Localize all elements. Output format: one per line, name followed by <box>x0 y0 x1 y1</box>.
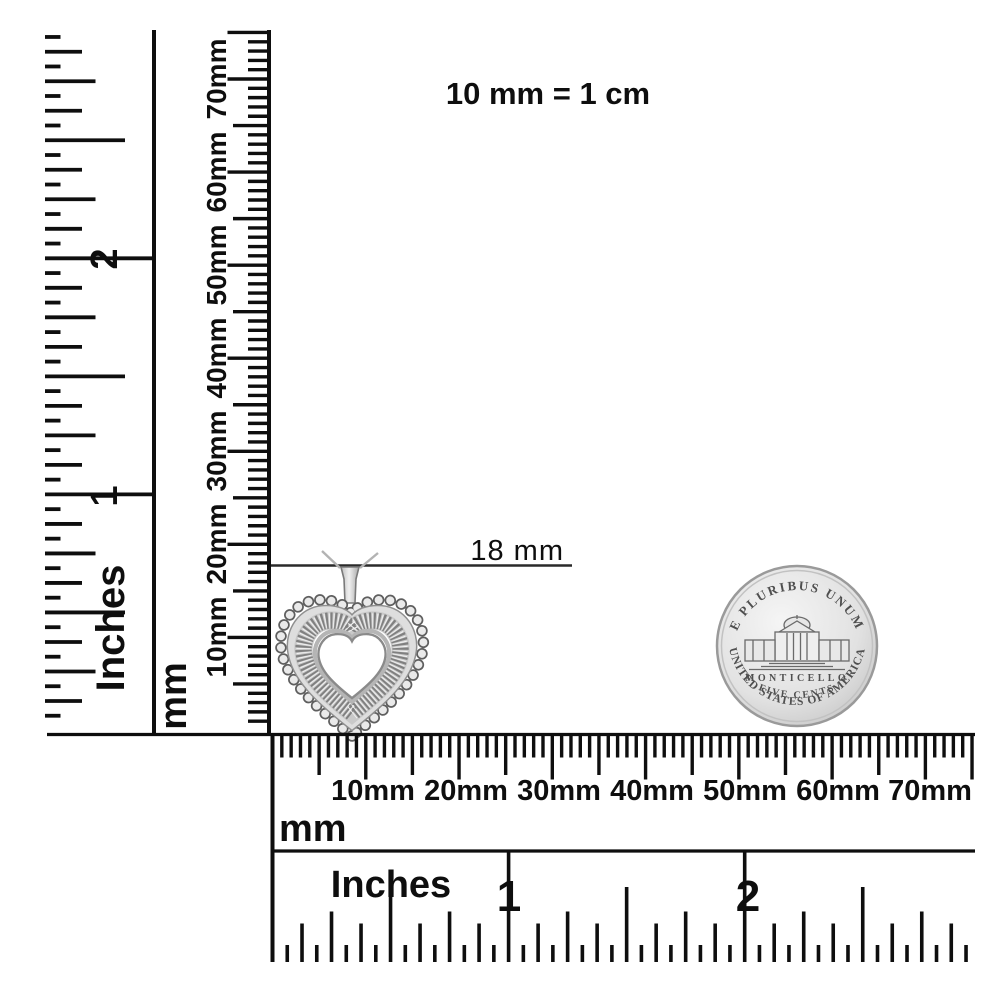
bottom-inches-number-2: 2 <box>736 872 760 921</box>
left-mm-label-20: 20mm <box>201 504 232 585</box>
bottom-mm-unit-label: mm <box>279 808 347 850</box>
building-portico <box>775 632 819 661</box>
bottom-mm-label-40: 40mm <box>610 775 694 807</box>
bottom-mm-label-30: 30mm <box>517 775 601 807</box>
bottom-mm-ruler-ticks <box>282 735 972 780</box>
left-mm-label-60: 60mm <box>201 132 232 213</box>
left-inches-number-1: 1 <box>84 485 126 506</box>
left-inches-unit-label: Inches <box>89 565 133 692</box>
left-mm-label-40: 40mm <box>201 318 232 399</box>
left-mm-ruler: 10mm 20mm 30mm 40mm 50mm 60mm 70mm mm <box>153 30 269 734</box>
left-mm-label-10: 10mm <box>201 597 232 678</box>
size-annotation: 18 mm <box>271 535 572 567</box>
pendant-bail <box>341 567 359 603</box>
left-mm-ruler-ticks <box>228 32 270 721</box>
building-left-wing <box>745 640 775 661</box>
left-mm-label-30: 30mm <box>201 411 232 492</box>
bottom-inches-ruler: Inches 1 2 <box>271 733 975 962</box>
left-mm-label-50: 50mm <box>201 225 232 306</box>
pendant-heart <box>281 600 424 736</box>
heart-pendant-photo <box>281 551 424 736</box>
bottom-inches-number-1: 1 <box>497 872 521 921</box>
nickel-coin-photo: E PLURIBUS UNUM UNITED STATES OF AMERICA… <box>717 566 877 726</box>
building-right-wing <box>819 640 849 661</box>
bottom-mm-label-50: 50mm <box>703 775 787 807</box>
bottom-mm-label-20: 20mm <box>424 775 508 807</box>
bottom-mm-label-70: 70mm <box>888 775 972 807</box>
left-inches-number-2: 2 <box>84 248 126 269</box>
scale-note-title: 10 mm = 1 cm <box>446 76 650 111</box>
product-measurement-image: 10 mm = 1 cm 1 2 Inches 10mm 20mm 30mm 4… <box>0 0 1000 1000</box>
bottom-mm-label-60: 60mm <box>796 775 880 807</box>
left-inches-ruler: 1 2 Inches <box>45 30 154 734</box>
left-mm-unit-label: mm <box>153 662 195 730</box>
left-mm-label-70: 70mm <box>201 39 232 120</box>
bottom-inches-unit-label: Inches <box>331 864 451 906</box>
coin-monticello-label: MONTICELLO <box>745 673 849 684</box>
bottom-mm-label-10: 10mm <box>331 775 415 807</box>
measurement-scene: 10 mm = 1 cm 1 2 Inches 10mm 20mm 30mm 4… <box>0 0 1000 1000</box>
bottom-mm-ruler: 10mm 20mm 30mm 40mm 50mm 60mm 70mm mm <box>279 735 972 850</box>
size-annotation-label: 18 mm <box>470 535 564 567</box>
